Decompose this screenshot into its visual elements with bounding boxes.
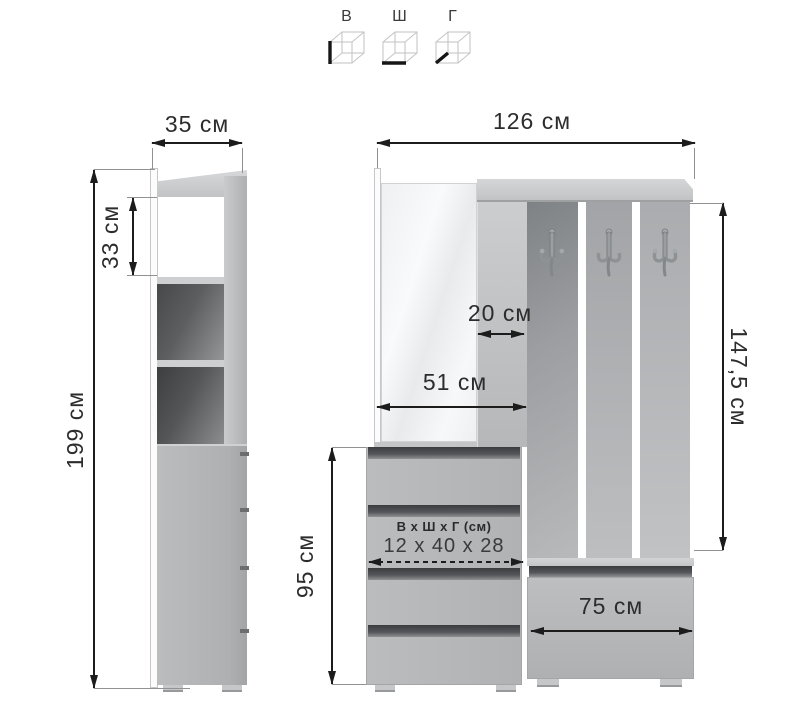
drawer-size-badge-value: 12 х 40 х 28 — [366, 535, 522, 558]
bench-top — [527, 558, 694, 566]
dim-label-mirror-section-width: 51 см — [395, 369, 515, 395]
dimension-legend: В Ш Г — [328, 8, 472, 65]
ext-line — [94, 169, 155, 170]
drawer-groove-2 — [368, 505, 520, 517]
coat-hook-icon — [596, 228, 622, 282]
cabinet-foot-right — [222, 685, 242, 692]
cube-depth-icon — [434, 29, 472, 65]
cabinet-shelf-board-1 — [157, 277, 224, 284]
coat-hook-icon — [652, 228, 678, 282]
bench-foot-left — [537, 679, 559, 687]
dim-arrow-bench-width — [531, 630, 692, 632]
ext-line — [152, 148, 153, 170]
ext-line — [690, 203, 723, 204]
dim-label-panel-width: 20 см — [448, 300, 552, 326]
dim-arrow-drawer-width-dashed — [369, 561, 523, 563]
dim-label-shelf-height: 33 см — [97, 182, 123, 292]
cabinet-shelf-opening-1 — [157, 196, 224, 277]
ext-line — [94, 688, 190, 689]
drawer-size-badge: В х Ш х Г (см) 12 х 40 х 28 — [366, 519, 522, 558]
dim-label-bench-width: 75 см — [551, 593, 671, 619]
cabinet-drawer-notch-3 — [240, 566, 249, 570]
top-board — [477, 179, 693, 202]
legend-item-depth: Г — [434, 8, 472, 65]
legend-item-width: Ш — [381, 8, 419, 65]
dim-label-unit-width: 126 см — [452, 108, 612, 134]
ext-line — [242, 148, 243, 173]
cabinet-shelf-opening-3 — [157, 367, 224, 444]
ext-line — [694, 550, 723, 551]
cabinet-shelf-opening-2 — [157, 284, 224, 360]
dim-label-cabinet-height: 199 см — [62, 360, 88, 500]
cabinet-drawer-notch-1 — [240, 452, 249, 456]
cube-height-icon — [328, 29, 366, 65]
dim-label-hanging-height: 147,5 см — [726, 292, 752, 462]
legend-letter-width: Ш — [392, 8, 408, 26]
cabinet-drawer-notch-2 — [240, 508, 249, 512]
drawer-size-badge-title: В х Ш х Г (см) — [366, 519, 522, 534]
drawer-groove-4 — [368, 625, 520, 637]
drawer-unit — [366, 447, 522, 685]
cube-width-icon — [381, 29, 419, 65]
dim-arrow-panel-width — [478, 333, 524, 335]
dim-arrow-drawer-section-height — [331, 448, 333, 684]
bench-foot-right — [660, 679, 682, 687]
dim-label-drawer-section-height: 95 см — [292, 506, 318, 626]
legend-letter-depth: Г — [448, 8, 458, 26]
legend-item-height: В — [328, 8, 366, 65]
dim-arrow-hanging-height — [722, 203, 724, 550]
ext-line — [377, 148, 378, 168]
ext-line — [694, 148, 695, 179]
dim-label-cabinet-width: 35 см — [137, 111, 257, 137]
coat-hook-icon — [539, 228, 565, 282]
furniture-dimension-diagram: { "legend": { "items": [ {"label": "В", … — [0, 0, 800, 702]
bench-drawer-groove — [529, 566, 692, 577]
drawer-unit-foot-left — [375, 685, 395, 692]
drawer-unit-foot-right — [496, 685, 516, 692]
cabinet-drawer-notch-4 — [240, 629, 249, 633]
legend-letter-height: В — [341, 8, 353, 26]
ext-line — [127, 197, 157, 198]
drawer-groove-1 — [368, 447, 520, 459]
ext-line — [332, 684, 366, 685]
drawer-groove-3 — [368, 568, 520, 580]
cabinet-lower-section — [157, 444, 247, 685]
ext-line — [332, 447, 366, 448]
ext-line — [127, 275, 157, 276]
dim-arrow-cabinet-height — [93, 170, 95, 688]
cabinet-shelf-board-2 — [157, 360, 224, 367]
dim-arrow-mirror-section-width — [377, 406, 526, 408]
dim-arrow-unit-width — [377, 142, 695, 144]
dim-arrow-cabinet-width — [152, 142, 242, 144]
dim-arrow-shelf-height — [132, 198, 134, 275]
